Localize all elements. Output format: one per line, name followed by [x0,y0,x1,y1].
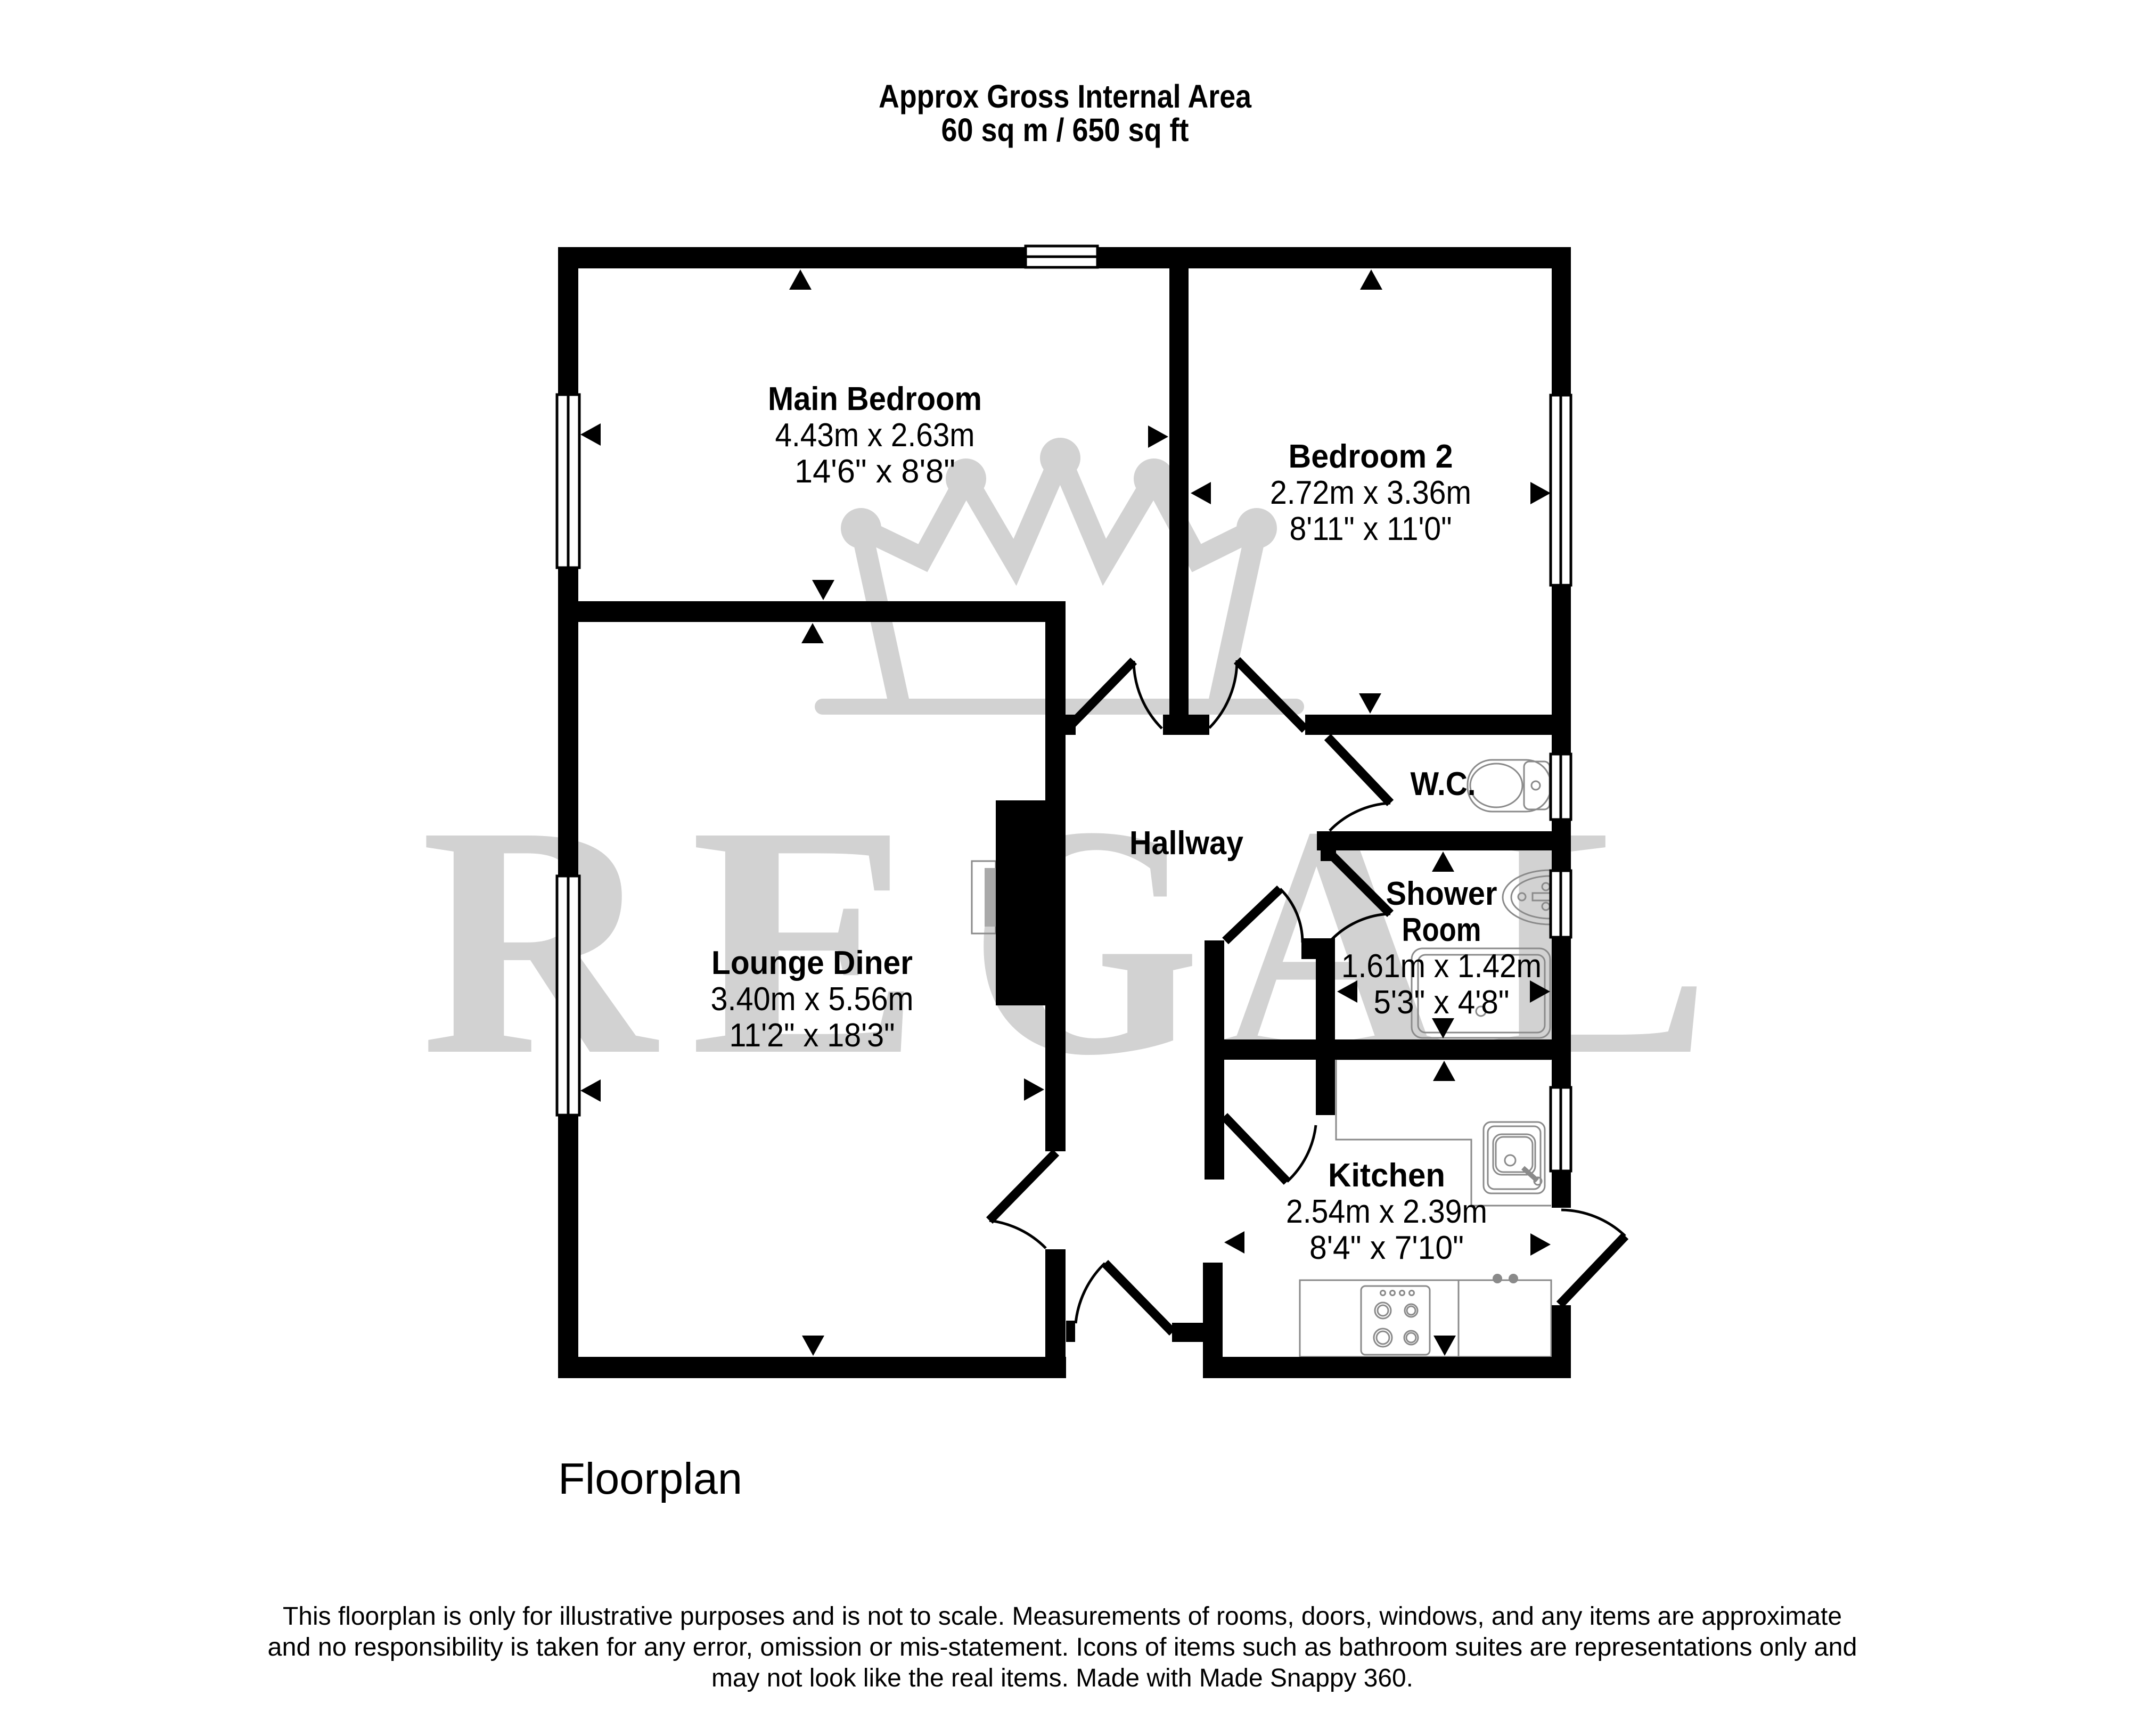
svg-text:1.61m x 1.42m: 1.61m x 1.42m [1341,948,1542,985]
svg-text:R: R [421,758,660,1124]
svg-text:W.C.: W.C. [1411,766,1476,803]
svg-text:L: L [1485,758,1711,1124]
svg-text:60 sq m / 650 sq ft: 60 sq m / 650 sq ft [941,112,1189,148]
svg-text:Shower: Shower [1386,875,1497,912]
svg-text:Hallway: Hallway [1129,825,1243,862]
svg-text:4.43m x 2.63m: 4.43m x 2.63m [775,417,975,454]
svg-text:3.40m x 5.56m: 3.40m x 5.56m [711,981,914,1018]
svg-text:11'2" x 18'3": 11'2" x 18'3" [730,1017,895,1054]
svg-text:8'11" x 11'0": 8'11" x 11'0" [1290,511,1452,547]
svg-text:2.72m x 3.36m: 2.72m x 3.36m [1270,474,1471,511]
svg-text:5'3" x 4'8": 5'3" x 4'8" [1374,984,1510,1021]
svg-text:and no responsibility is taken: and no responsibility is taken for any e… [268,1633,1857,1661]
svg-text:14'6" x 8'8": 14'6" x 8'8" [794,453,955,490]
svg-text:8'4" x 7'10": 8'4" x 7'10" [1309,1230,1464,1266]
svg-text:2.54m x 2.39m: 2.54m x 2.39m [1286,1193,1487,1230]
svg-text:Floorplan: Floorplan [558,1454,742,1503]
svg-text:Bedroom 2: Bedroom 2 [1289,438,1453,475]
svg-text:This floorplan is only for ill: This floorplan is only for illustrative … [283,1602,1842,1631]
svg-text:Room: Room [1402,912,1481,948]
svg-text:Main Bedroom: Main Bedroom [768,381,982,417]
svg-text:Lounge Diner: Lounge Diner [711,945,913,981]
svg-text:Approx Gross Internal Area: Approx Gross Internal Area [879,78,1252,114]
svg-text:Kitchen: Kitchen [1328,1157,1445,1194]
svg-text:may not look like the real ite: may not look like the real items. Made w… [711,1664,1413,1692]
svg-text:E: E [690,758,922,1124]
